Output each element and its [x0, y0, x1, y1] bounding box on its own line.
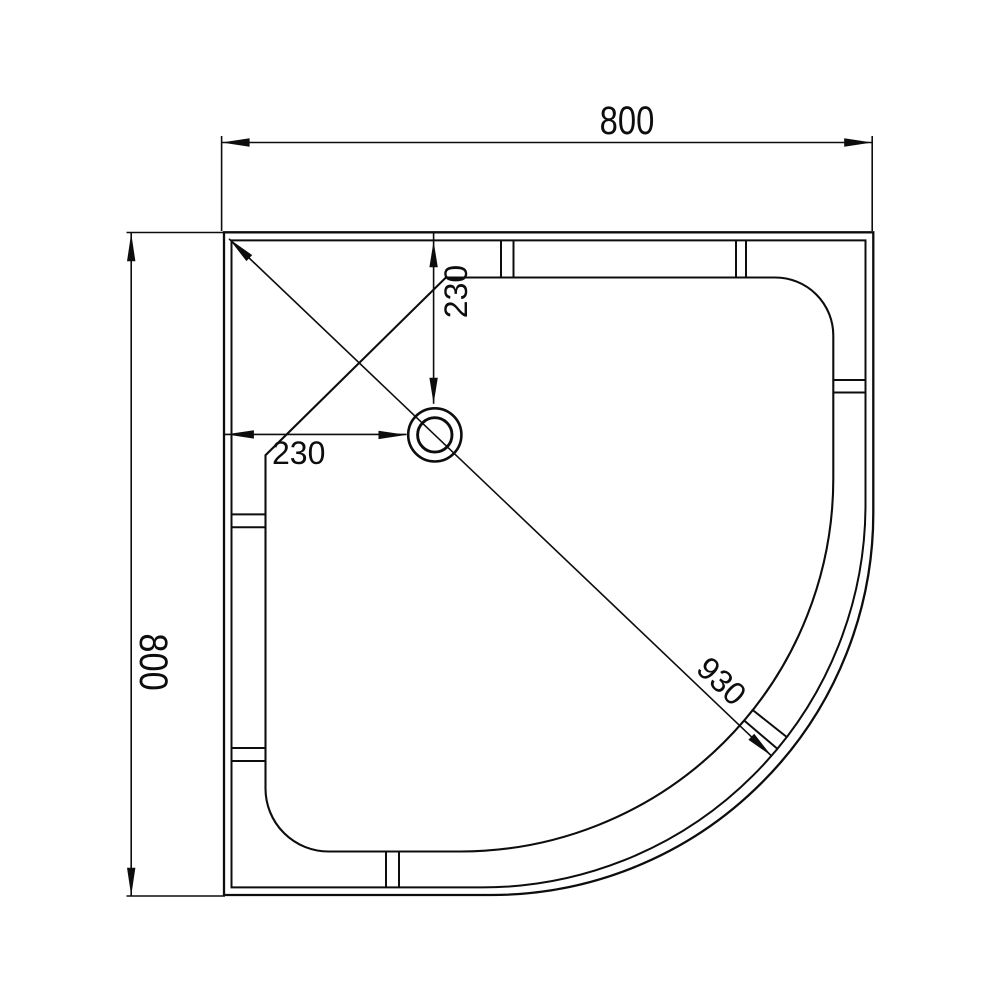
svg-text:230: 230 [438, 265, 474, 318]
svg-text:800: 800 [131, 633, 176, 690]
svg-text:800: 800 [600, 98, 655, 143]
svg-text:230: 230 [272, 435, 325, 471]
